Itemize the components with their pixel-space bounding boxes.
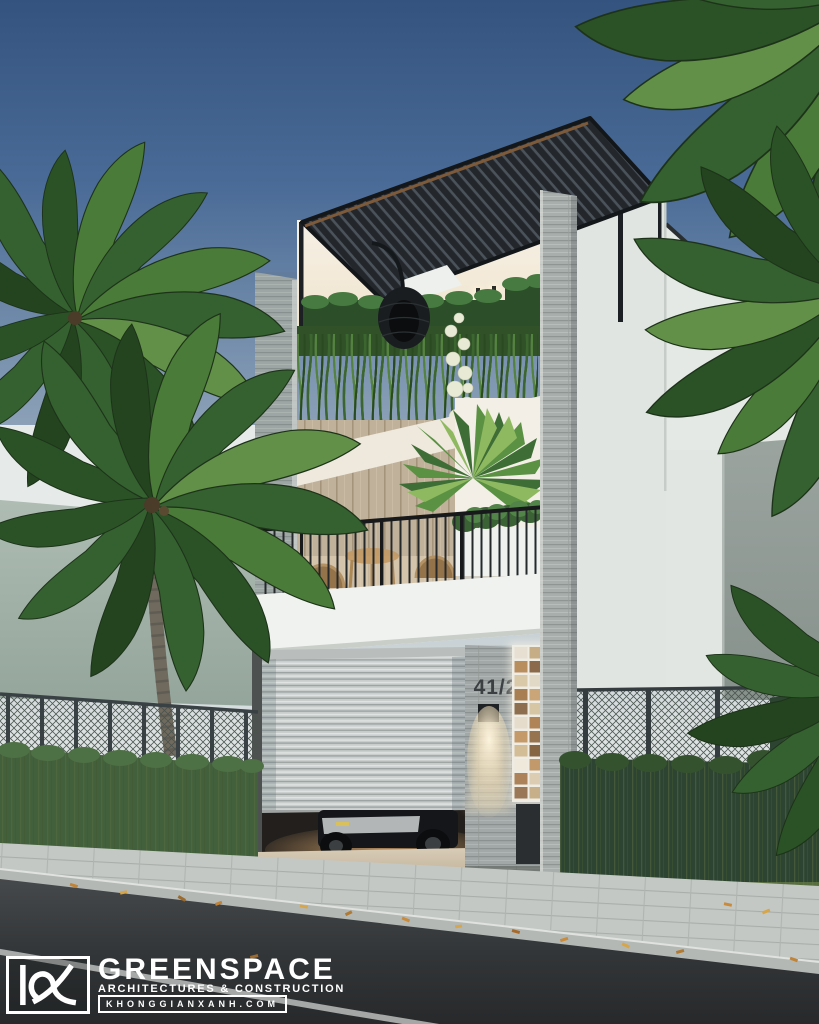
garage — [238, 647, 495, 892]
pergola-post — [299, 222, 304, 326]
pier-service-panel — [516, 804, 542, 864]
studio-website: KHONGGIANXANH.COM — [98, 995, 287, 1013]
left-hedge — [0, 742, 264, 862]
studio-logo-monogram — [6, 956, 90, 1014]
downlight-glow — [467, 706, 511, 818]
rendering-canvas: 41/2 — [0, 0, 819, 1024]
studio-name: GREENSPACE — [98, 957, 345, 983]
studio-tagline: ARCHITECTURES & CONSTRUCTION — [98, 983, 345, 995]
roller-shutter-door — [262, 656, 468, 816]
studio-watermark: GREENSPACE ARCHITECTURES & CONSTRUCTION … — [6, 956, 345, 1014]
scene-illustration: 41/2 — [0, 0, 819, 1024]
kx-monogram-icon — [15, 963, 81, 1007]
